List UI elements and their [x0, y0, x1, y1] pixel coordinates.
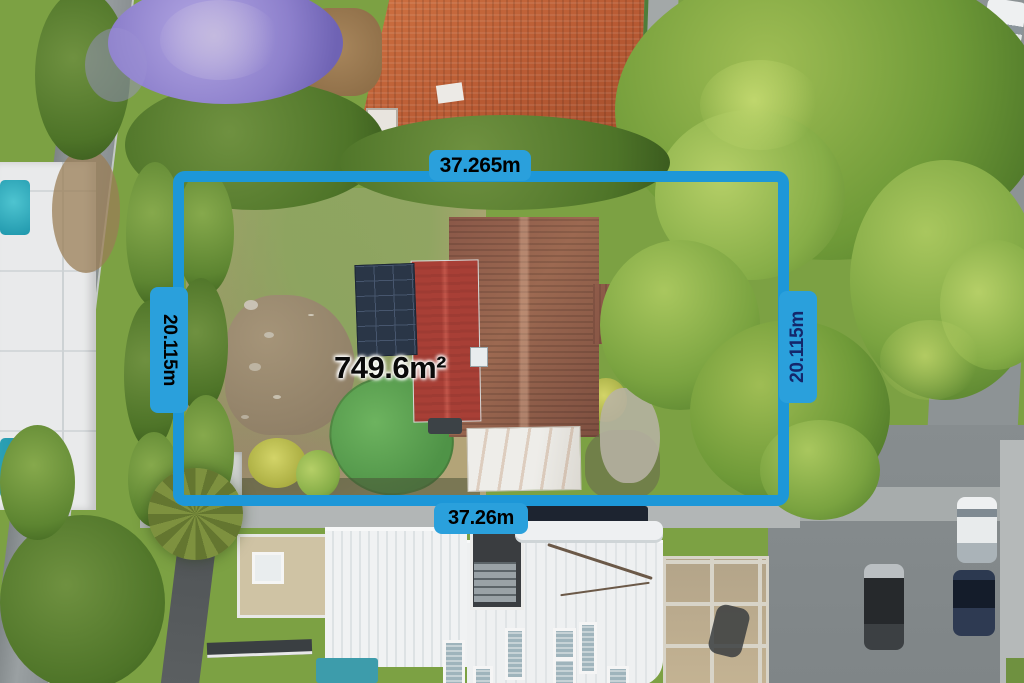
- footpath-right: [1000, 440, 1024, 683]
- skylight-window: [473, 666, 493, 683]
- leaf-litter: [52, 148, 120, 273]
- parked-car-dark: [864, 564, 904, 650]
- skylight: [252, 552, 284, 584]
- dimension-top-text: 37.265m: [440, 154, 521, 178]
- dimension-bottom-text: 37.26m: [448, 507, 514, 530]
- skylight-window: [553, 628, 576, 660]
- van-roof: [515, 521, 663, 543]
- skylight-window: [553, 658, 576, 683]
- dimension-label-top: 37.265m: [429, 150, 531, 181]
- dimension-label-left: 20.115m: [150, 287, 188, 413]
- skylight-window: [579, 622, 597, 674]
- pool: [0, 180, 30, 235]
- parked-car-white: [957, 497, 997, 563]
- louvre-skylight: [474, 562, 516, 602]
- dimension-label-right: 20.115m: [779, 291, 817, 403]
- aerial-photo: 37.265m 37.26m 20.115m 20.115m 749.6m²: [0, 0, 1024, 683]
- fallen-petals: [85, 28, 147, 102]
- lot-boundary: [173, 171, 789, 506]
- canopy-highlight: [700, 60, 820, 150]
- dimension-right-text: 20.115m: [787, 311, 809, 383]
- dimension-label-bottom: 37.26m: [434, 503, 528, 534]
- skylight-window: [505, 628, 525, 680]
- dimension-left-text: 20.115m: [158, 314, 180, 386]
- skylight-window: [443, 640, 465, 683]
- shrubs: [0, 425, 75, 540]
- area-label: 749.6m²: [334, 350, 446, 386]
- skylight-window: [607, 666, 629, 683]
- parked-car-navy: [953, 570, 995, 636]
- pool: [316, 658, 378, 683]
- canopy-highlight: [880, 320, 980, 400]
- grass-verge: [1006, 658, 1024, 683]
- shrubs: [0, 515, 165, 683]
- roof-vent: [436, 82, 464, 103]
- jacaranda-highlight: [160, 0, 280, 80]
- awning: [207, 639, 312, 658]
